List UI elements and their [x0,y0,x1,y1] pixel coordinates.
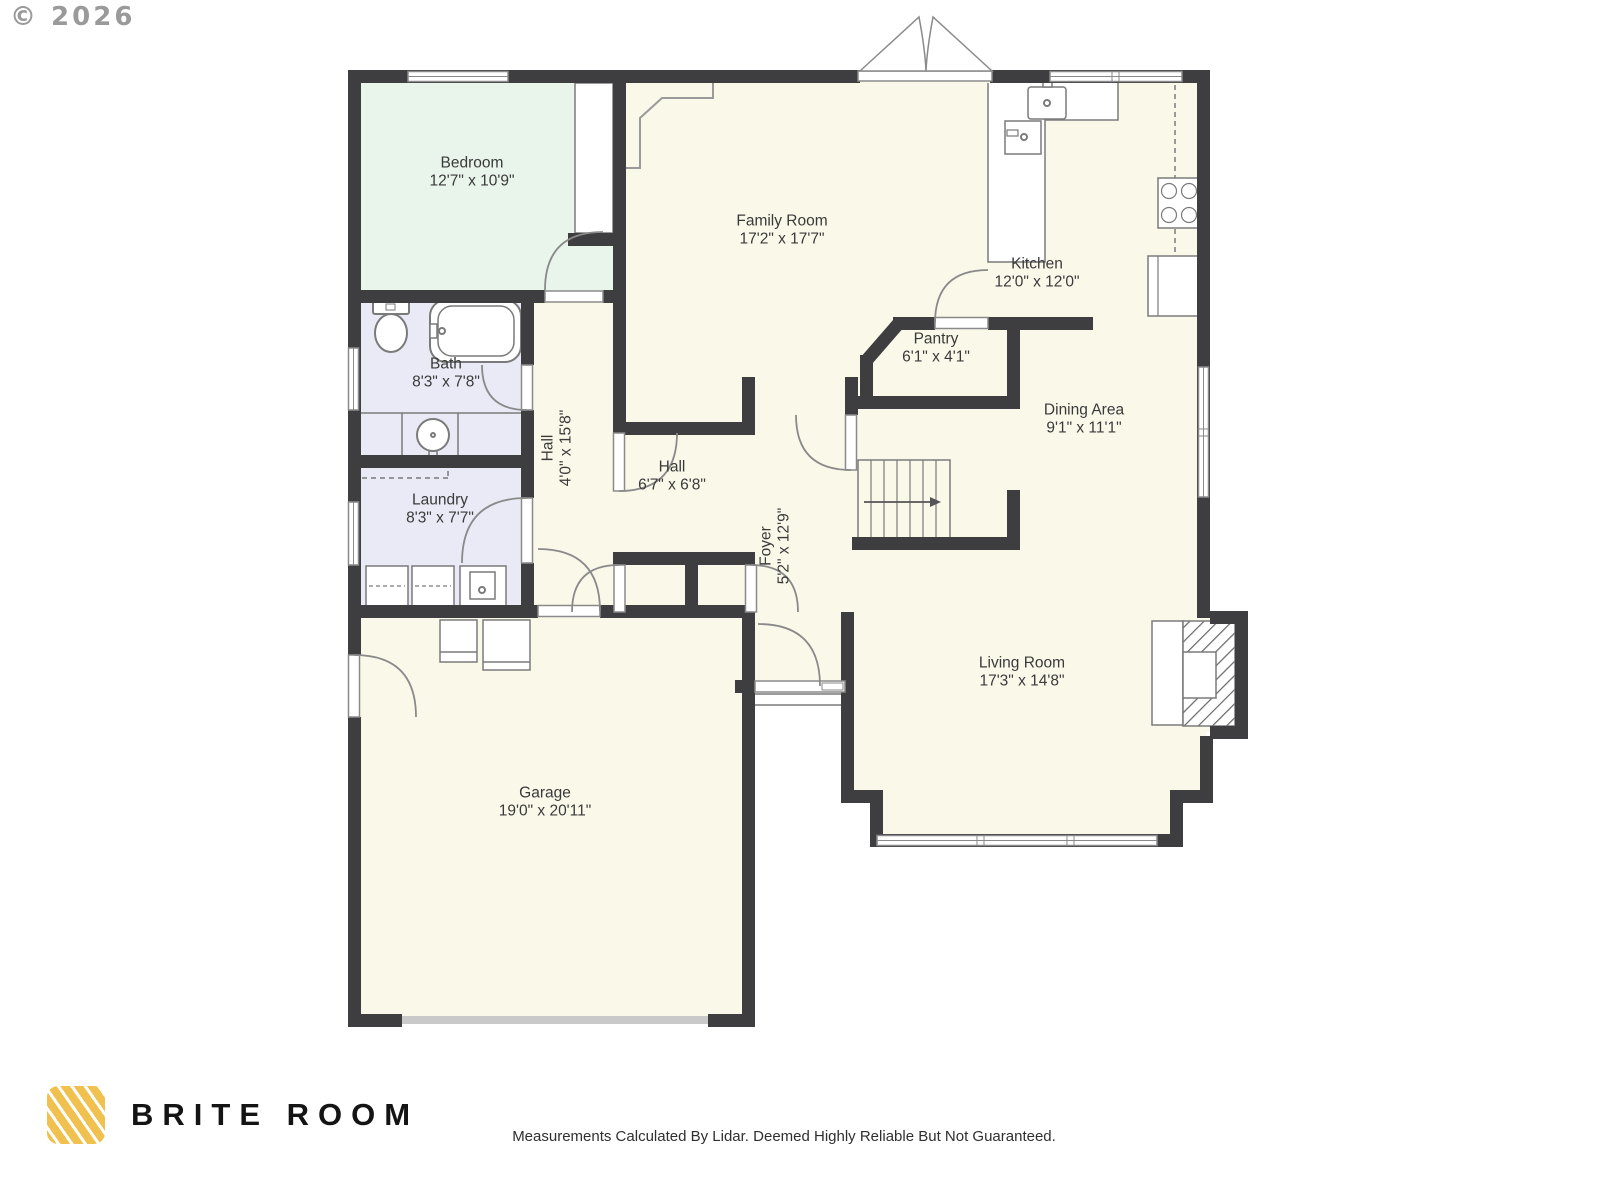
living-room-bay-windows [877,836,1157,846]
bathtub-icon [430,300,521,362]
washer-icon [366,566,408,606]
dryer-icon [412,566,454,606]
garage-door [402,1016,708,1024]
furnace-icon [483,620,530,670]
toilet-icon [373,301,409,352]
bedroom-window [408,72,508,82]
stove-icon [1158,178,1200,228]
kitchen-window [1050,72,1182,82]
brand-logo: BRITE ROOM [47,1086,419,1144]
bedroom-closet [575,83,613,233]
floor-plan-svg [0,0,1600,1200]
laundry-sink-icon [460,566,506,606]
measurement-disclaimer: Measurements Calculated By Lidar. Deemed… [512,1128,1056,1145]
fridge-icon [1148,256,1200,316]
laundry-window [349,502,359,565]
front-porch-step [752,694,843,705]
dining-window [1199,367,1209,497]
stairs [858,460,950,540]
floor-fills [355,77,1241,1020]
water-heater-icon [440,620,477,662]
bath-window [349,348,359,410]
garage-floor [355,612,742,1020]
brand-name: BRITE ROOM [131,1097,419,1133]
brite-room-logo-icon [47,1086,105,1144]
dishwasher-icon [1005,121,1041,154]
fireplace [1152,621,1235,726]
patio-double-door [858,17,992,81]
